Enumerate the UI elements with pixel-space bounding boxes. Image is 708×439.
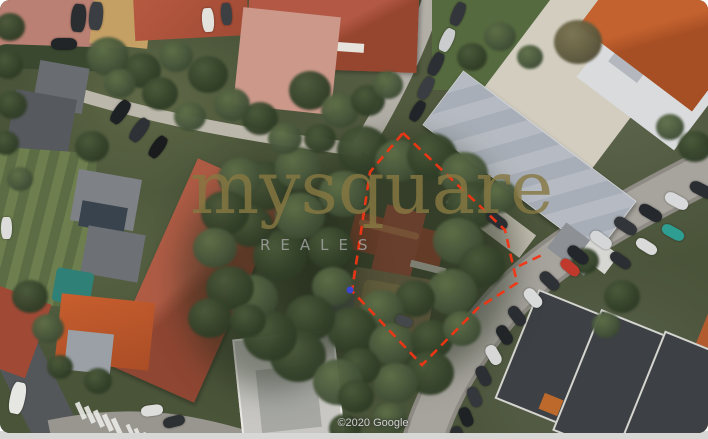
boundary-vertex-marker [347, 287, 354, 294]
watermark-subtitle: REALES [260, 236, 378, 254]
watermark-brand: mysquare [190, 146, 553, 231]
property-boundary-tail [519, 254, 544, 266]
map-attribution: ©2020 Google [303, 417, 443, 429]
listing-photo-page: mysquare REALES ©2020 Google [0, 0, 708, 439]
satellite-map-view[interactable]: mysquare REALES ©2020 Google [0, 0, 708, 433]
